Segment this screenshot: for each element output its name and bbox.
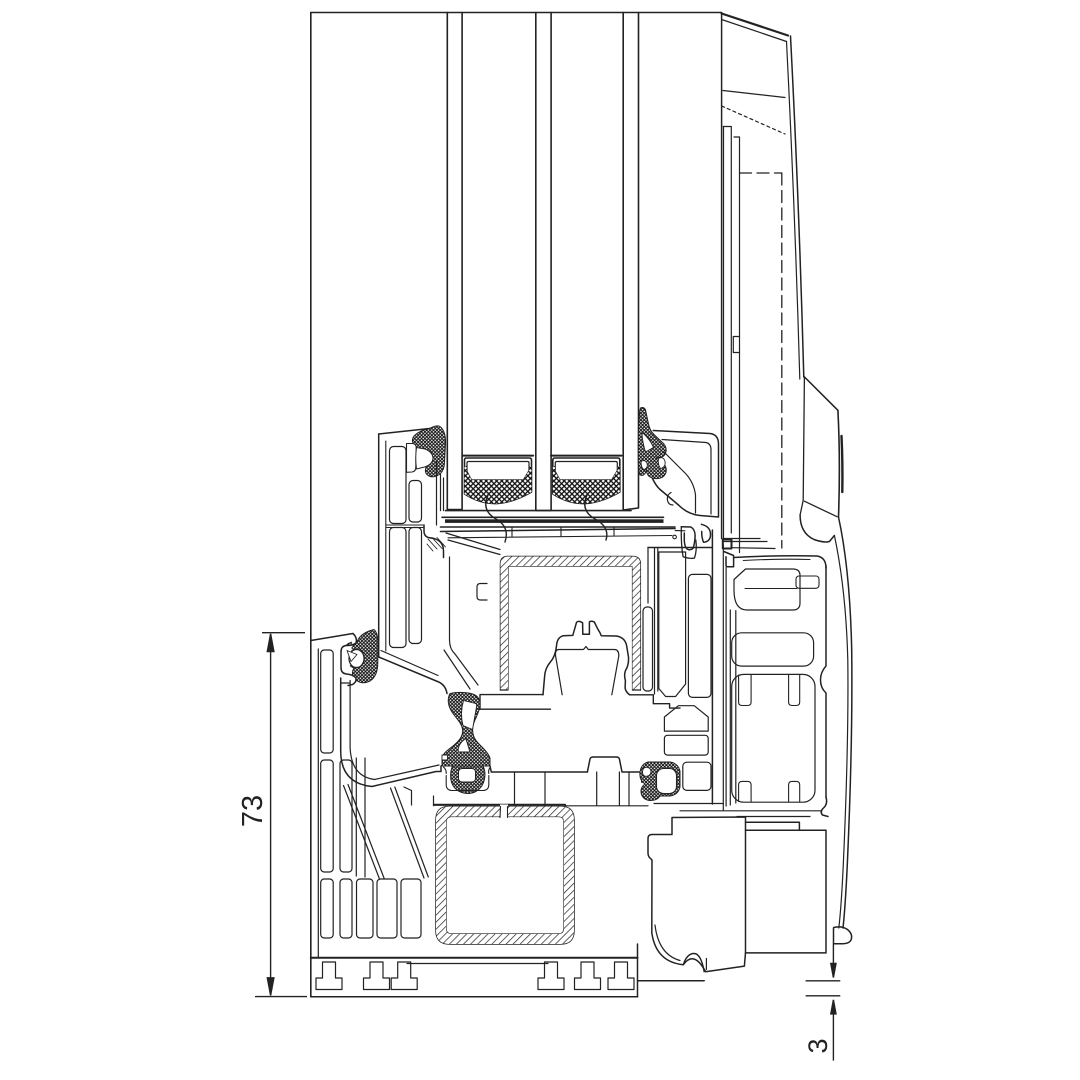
svg-text:3: 3 [803,1038,833,1053]
svg-text:73: 73 [237,795,269,827]
